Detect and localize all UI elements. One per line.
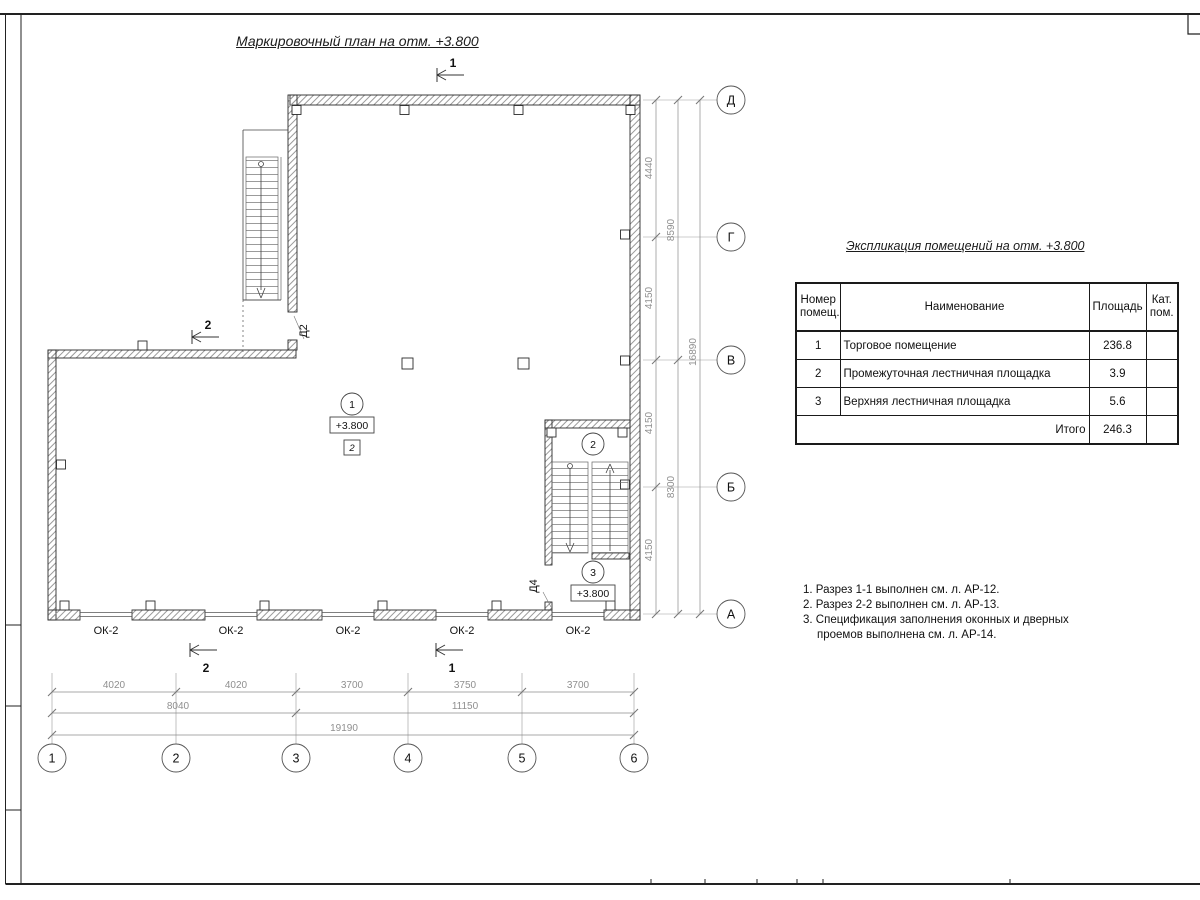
dim-8040: 8040 — [167, 701, 190, 712]
window-5 — [552, 610, 604, 620]
finish-mark: 2 — [348, 443, 355, 454]
axis-b: Б — [727, 481, 735, 495]
dim-3700-b: 3700 — [567, 680, 590, 691]
axis-4: 4 — [405, 752, 412, 766]
dim-16890: 16890 — [688, 338, 699, 366]
axis-6: 6 — [631, 752, 638, 766]
cell-area: 5.6 — [1089, 388, 1146, 416]
axis-v: В — [727, 354, 735, 368]
table-header-row: Номерпомещ. Наименование Площадь Кат.пом… — [796, 283, 1178, 331]
wall-pier-3 — [257, 610, 322, 620]
axis-labels-right: Д Г В Б А — [727, 94, 736, 622]
wall-pier-1 — [48, 610, 80, 620]
total-label: Итого — [796, 416, 1089, 445]
wall-pier-2 — [132, 610, 205, 620]
total-area: 246.3 — [1089, 416, 1146, 445]
table-total-row: Итого 246.3 — [796, 416, 1178, 445]
section-mark-bottom-right: 1 — [436, 643, 463, 675]
window-label-1: ОК-2 — [94, 625, 119, 637]
door-labels: Д2 Д4 — [294, 316, 551, 607]
wall-pier-6 — [604, 610, 640, 620]
dim-8300: 8300 — [666, 475, 677, 498]
note-line: 1. Разрез 1-1 выполнен см. л. АР-12. — [803, 583, 1069, 598]
table-row: 3 Верхняя лестничная площадка 5.6 — [796, 388, 1178, 416]
dim-4150-b: 4150 — [644, 411, 655, 434]
col-header-name: Наименование — [840, 283, 1089, 331]
axis-g: Г — [728, 231, 735, 245]
wall-pier-5 — [488, 610, 552, 620]
axis-1: 1 — [49, 752, 56, 766]
window-labels: ОК-2 ОК-2 ОК-2 ОК-2 ОК-2 — [94, 625, 591, 637]
cell-number: 3 — [796, 388, 840, 416]
plan-canvas: Д2 Д4 4020 4020 3700 3750 3700 8040 1 — [0, 0, 1200, 900]
svg-text:2: 2 — [590, 439, 596, 451]
section-mark-left: 2 — [192, 318, 219, 344]
dim-4150-c: 4150 — [644, 538, 655, 561]
dim-19190: 19190 — [330, 723, 358, 734]
room-marker-1: 1 +3.800 2 — [330, 393, 374, 455]
dim-11150: 11150 — [452, 701, 479, 712]
window-label-3: ОК-2 — [336, 625, 361, 637]
cell-area: 3.9 — [1089, 360, 1146, 388]
cell-number: 2 — [796, 360, 840, 388]
svg-text:2: 2 — [203, 661, 210, 675]
wall-jamb-d2 — [288, 340, 297, 350]
wall-under-flight — [592, 553, 629, 559]
axis-3: 3 — [293, 752, 300, 766]
cell-name: Промежуточная лестничная площадка — [840, 360, 1089, 388]
window-label-4: ОК-2 — [450, 625, 475, 637]
window-3 — [322, 610, 374, 620]
dim-8590: 8590 — [666, 218, 677, 241]
section-mark-top: 1 — [437, 56, 464, 82]
stair-lower — [552, 462, 628, 553]
dimensions-bottom: 4020 4020 3700 3750 3700 8040 11150 1919… — [48, 680, 638, 739]
axis-d: Д — [727, 94, 736, 108]
drawing-sheet: { "titles": { "plan": "Маркировочный пла… — [0, 0, 1200, 900]
window-4 — [436, 610, 488, 620]
axis-bubbles-bottom — [38, 744, 648, 772]
cell-name: Торговое помещение — [840, 331, 1089, 360]
rooms-table: Номерпомещ. Наименование Площадь Кат.пом… — [795, 282, 1179, 445]
plan-title: Маркировочный план на отм. +3.800 — [236, 33, 479, 49]
wall-stairwell-left — [545, 420, 552, 565]
axis-2: 2 — [173, 752, 180, 766]
note-line: 2. Разрез 2-2 выполнен см. л. АР-13. — [803, 598, 1069, 613]
cell-name: Верхняя лестничная площадка — [840, 388, 1089, 416]
cell-category — [1146, 388, 1178, 416]
door-label-d2: Д2 — [298, 324, 310, 338]
notes: 1. Разрез 1-1 выполнен см. л. АР-12. 2. … — [803, 583, 1069, 643]
dim-4020-b: 4020 — [225, 680, 248, 691]
room-marker-3: 3 +3.800 — [571, 561, 615, 601]
axis-a: А — [727, 608, 736, 622]
wall-middle — [48, 350, 296, 358]
total-category — [1146, 416, 1178, 445]
wall-left — [48, 350, 56, 620]
axis-labels-bottom: 1 2 3 4 5 6 — [49, 752, 638, 766]
wall-right — [630, 95, 640, 620]
wall-upper-left — [288, 95, 297, 312]
wall-stairwell-top — [545, 420, 630, 428]
note-line: проемов выполнена см. л. АР-14. — [803, 628, 1069, 643]
elevation-mark: +3.800 — [336, 420, 369, 432]
table-title: Экспликация помещений на отм. +3.800 — [846, 239, 1085, 253]
dim-3750: 3750 — [454, 680, 477, 691]
wall-jamb-d4 — [545, 602, 552, 610]
svg-text:1: 1 — [450, 56, 457, 70]
section-mark-bottom-left: 2 — [190, 643, 217, 675]
cell-category — [1146, 360, 1178, 388]
axis-5: 5 — [519, 752, 526, 766]
svg-text:3: 3 — [590, 567, 596, 579]
wall-pier-4 — [374, 610, 436, 620]
dim-3700-a: 3700 — [341, 680, 364, 691]
section-marks: 1 2 2 1 — [190, 56, 464, 675]
window-1 — [80, 610, 132, 620]
table-row: 1 Торговое помещение 236.8 — [796, 331, 1178, 360]
cell-category — [1146, 331, 1178, 360]
room-marker-2: 2 — [582, 433, 604, 455]
note-line: 3. Спецификация заполнения оконных и две… — [803, 613, 1069, 628]
cell-number: 1 — [796, 331, 840, 360]
door-label-d4: Д4 — [528, 579, 540, 593]
wall-top — [290, 95, 640, 105]
stair-upper — [243, 130, 288, 352]
dim-4440: 4440 — [644, 156, 655, 179]
col-header-area: Площадь — [1089, 283, 1146, 331]
cell-area: 236.8 — [1089, 331, 1146, 360]
svg-text:1: 1 — [349, 399, 355, 411]
elevation-mark: +3.800 — [577, 588, 610, 600]
col-header-number: Номерпомещ. — [796, 283, 840, 331]
dim-4150-a: 4150 — [644, 286, 655, 309]
dim-4020-a: 4020 — [103, 680, 126, 691]
svg-text:1: 1 — [449, 661, 456, 675]
window-label-5: ОК-2 — [566, 625, 591, 637]
svg-text:2: 2 — [205, 318, 212, 332]
window-2 — [205, 610, 257, 620]
walls — [48, 95, 640, 620]
dimensions-right: 4440 4150 4150 4150 8590 8300 16890 — [644, 96, 704, 618]
col-header-category: Кат.пом. — [1146, 283, 1178, 331]
table-row: 2 Промежуточная лестничная площадка 3.9 — [796, 360, 1178, 388]
window-label-2: ОК-2 — [219, 625, 244, 637]
